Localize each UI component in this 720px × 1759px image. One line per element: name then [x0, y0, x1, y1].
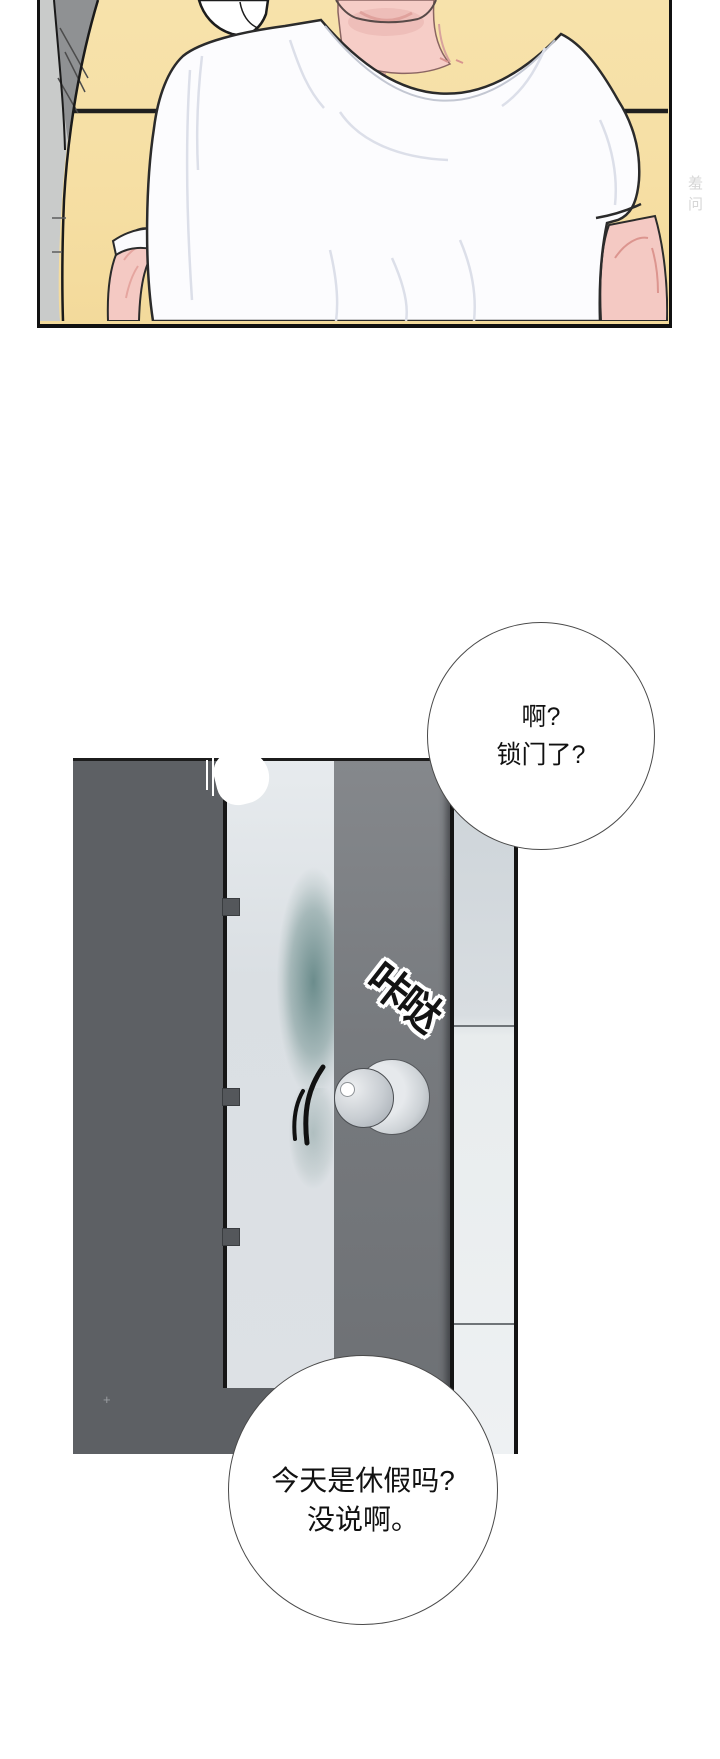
speech-line: 没说啊。 — [307, 1500, 419, 1539]
doorknob — [334, 1068, 394, 1128]
jamb-divider-lower — [454, 1323, 514, 1325]
paint-streak — [212, 758, 214, 796]
speech-bubble-top: 啊? 锁门了? — [427, 622, 655, 850]
speech-bubble-bottom: 今天是休假吗? 没说啊。 — [228, 1355, 498, 1625]
door-hinge-middle — [222, 1088, 240, 1106]
doorknob-highlight — [340, 1082, 355, 1097]
torso-illustration — [40, 0, 668, 321]
door-frame-line-outer — [514, 758, 518, 1454]
couch-arm — [40, 0, 98, 321]
door-jamb — [454, 758, 514, 1454]
site-watermark: 羞问 — [684, 175, 705, 217]
comic-page: 羞问 咔哒 — [0, 0, 720, 1759]
right-arm — [600, 216, 667, 321]
speech-line: 锁门了? — [497, 736, 586, 774]
rattle-motion-lines — [292, 1063, 337, 1151]
panel-door: 咔哒 + — [73, 758, 518, 1454]
paint-streak — [220, 762, 222, 790]
jamb-divider-upper — [454, 1025, 514, 1027]
speech-line: 今天是休假吗? — [271, 1461, 455, 1500]
panel-couch-torso — [37, 0, 672, 328]
door-hinge-top — [222, 898, 240, 916]
speech-line: 啊? — [522, 698, 561, 736]
wall-cross-mark: + — [103, 1392, 111, 1407]
door-hinge-bottom — [222, 1228, 240, 1246]
paint-streak — [206, 760, 208, 790]
